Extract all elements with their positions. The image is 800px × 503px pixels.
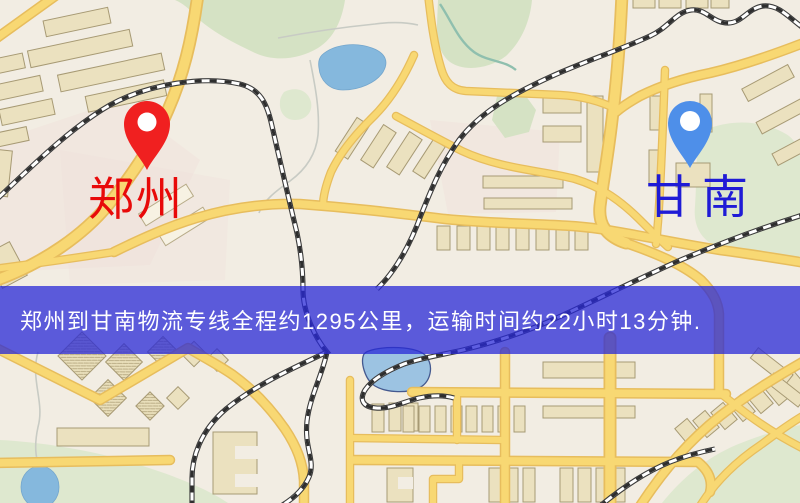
destination-pin-hole: [680, 111, 700, 131]
origin-city-label: 郑州: [88, 177, 184, 223]
pond: [21, 466, 59, 503]
route-info-banner: 郑州到甘南物流专线全程约1295公里，运输时间约22小时13分钟.: [0, 286, 800, 354]
logistics-route-map: 郑州 甘南 郑州到甘南物流专线全程约1295公里，运输时间约22小时13分钟.: [0, 0, 800, 503]
map-canvas: [0, 0, 800, 503]
destination-city-label: 甘南: [646, 175, 758, 221]
route-info-text: 郑州到甘南物流专线全程约1295公里，运输时间约22小时13分钟.: [20, 304, 702, 336]
origin-pin-hole: [138, 113, 157, 132]
